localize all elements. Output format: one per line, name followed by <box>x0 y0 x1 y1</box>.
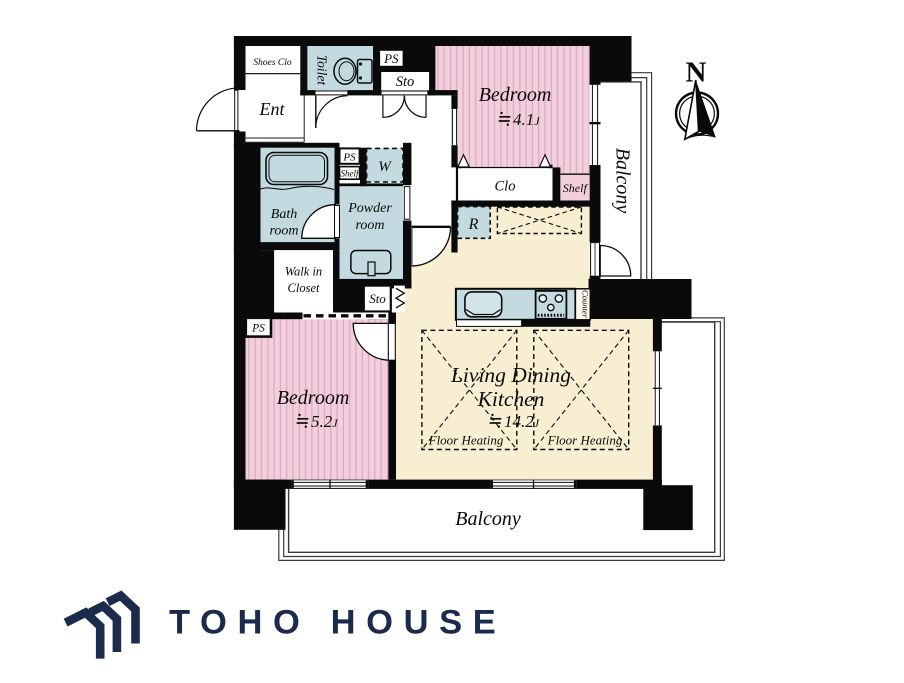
svg-text:Shoes Clo: Shoes Clo <box>253 58 292 68</box>
svg-text:Balcony: Balcony <box>455 508 521 530</box>
svg-text:Closet: Closet <box>288 281 320 295</box>
svg-text:Powder: Powder <box>347 201 392 216</box>
svg-text:PS: PS <box>342 152 356 164</box>
svg-text:room: room <box>269 224 298 239</box>
svg-text:PS: PS <box>383 51 399 66</box>
svg-text:Floor Heating: Floor Heating <box>547 433 623 448</box>
svg-text:Shelf: Shelf <box>563 181 589 195</box>
svg-text:Floor Heating: Floor Heating <box>428 433 504 448</box>
svg-text:W: W <box>378 159 392 175</box>
svg-text:Bath: Bath <box>271 207 297 222</box>
svg-text:room: room <box>355 218 384 233</box>
svg-text:Walk in: Walk in <box>285 265 322 279</box>
svg-text:Clo: Clo <box>495 179 516 195</box>
svg-text:Bedroom: Bedroom <box>479 84 552 106</box>
svg-text:Balcony: Balcony <box>612 148 634 214</box>
svg-text:PS: PS <box>251 323 265 335</box>
svg-text:Kitchen: Kitchen <box>477 387 545 411</box>
svg-text:Toilet: Toilet <box>315 55 330 87</box>
svg-text:Sto: Sto <box>369 291 386 306</box>
svg-text:R: R <box>468 216 479 233</box>
svg-text:Living Dining: Living Dining <box>450 363 571 387</box>
svg-text:TOHO HOUSE: TOHO HOUSE <box>169 604 506 642</box>
svg-text:Counter: Counter <box>581 290 591 319</box>
svg-text:Shelf: Shelf <box>341 169 360 179</box>
svg-text:Ent: Ent <box>259 99 286 119</box>
svg-text:Sto: Sto <box>396 74 415 90</box>
svg-text:Bedroom: Bedroom <box>277 387 350 409</box>
